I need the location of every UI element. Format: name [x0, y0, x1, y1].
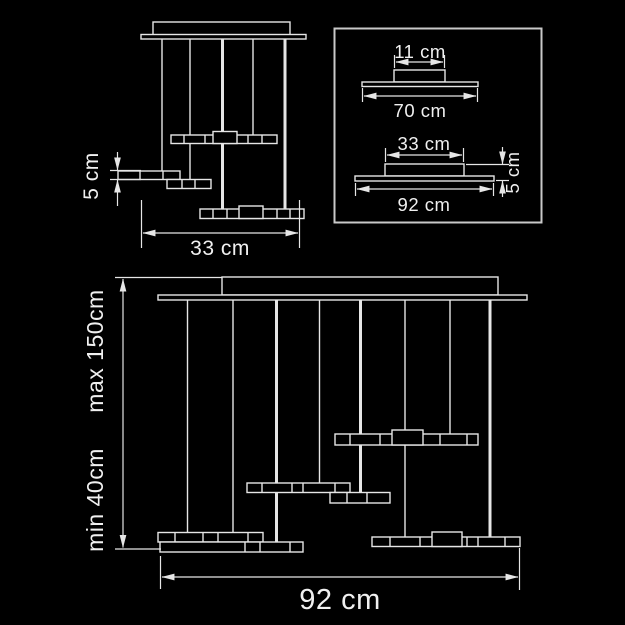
ceiling-plate	[141, 35, 306, 40]
bar-center-block	[213, 132, 237, 144]
base-height-label: 5 cm	[502, 151, 523, 193]
ceiling-canopy	[222, 277, 498, 295]
canopy-plate	[362, 82, 478, 87]
base-plate-width-label: 92 cm	[398, 194, 451, 215]
ceiling-canopy	[153, 22, 290, 35]
dimension-drawing-page: 5 cm 33 cm 11 cm 70 cm	[0, 0, 625, 625]
bar-center-block	[392, 430, 423, 445]
base-top-width-label: 33 cm	[398, 133, 451, 154]
bar-center-block	[432, 532, 462, 547]
large-view-width-label: 92 cm	[299, 584, 380, 616]
base-top-body	[385, 164, 464, 176]
ceiling-plate	[158, 295, 527, 300]
diagram-canvas: 5 cm 33 cm 11 cm 70 cm	[0, 0, 625, 625]
base-plate	[355, 176, 494, 181]
canopy-plate-width-label: 70 cm	[394, 100, 447, 121]
small-view-width-label: 33 cm	[190, 237, 250, 260]
canopy-width-label: 11 cm	[394, 41, 446, 62]
max-height-label: max 150cm	[82, 289, 108, 412]
min-height-label: min 40cm	[82, 448, 108, 552]
bar-center-block	[239, 206, 263, 219]
canopy-body	[394, 70, 445, 82]
small-view-height-label: 5 cm	[80, 152, 103, 200]
